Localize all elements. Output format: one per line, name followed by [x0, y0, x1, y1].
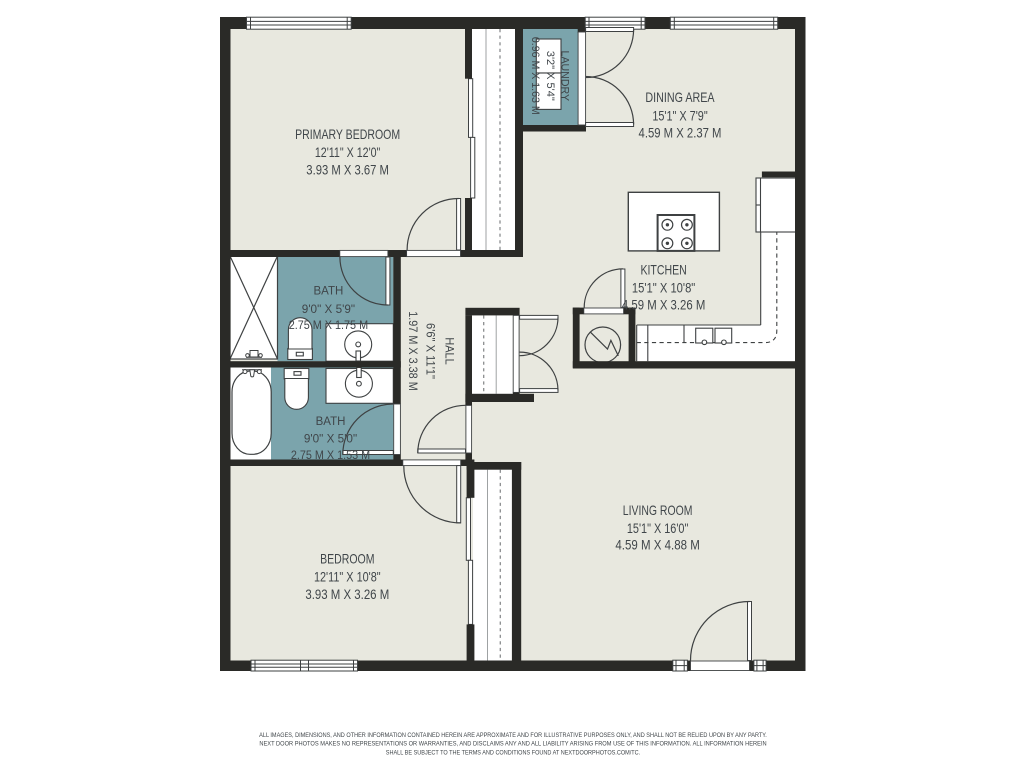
svg-text:12'11" X 12'0": 12'11" X 12'0": [315, 145, 380, 161]
svg-text:ALL IMAGES, DIMENSIONS, AND OT: ALL IMAGES, DIMENSIONS, AND OTHER INFORM…: [259, 732, 767, 740]
svg-text:HALL: HALL: [442, 337, 455, 364]
svg-text:DINING AREA: DINING AREA: [645, 90, 715, 105]
svg-text:12'11" X 10'8": 12'11" X 10'8": [314, 569, 381, 584]
svg-text:KITCHEN: KITCHEN: [640, 262, 686, 278]
svg-text:4.59 M X 3.26 M: 4.59 M X 3.26 M: [622, 298, 705, 313]
svg-text:0.96 M X 1.63 M: 0.96 M X 1.63 M: [529, 37, 541, 115]
svg-text:LIVING ROOM: LIVING ROOM: [623, 503, 693, 519]
svg-text:1.97 M X 3.38 M: 1.97 M X 3.38 M: [406, 311, 419, 390]
svg-text:LAUNDRY: LAUNDRY: [559, 51, 571, 102]
svg-text:PRIMARY BEDROOM: PRIMARY BEDROOM: [295, 127, 400, 143]
svg-text:3.93 M X 3.26 M: 3.93 M X 3.26 M: [305, 587, 389, 602]
svg-text:6'6" X 11'1": 6'6" X 11'1": [423, 323, 435, 379]
svg-text:15'1" X 16'0": 15'1" X 16'0": [627, 521, 688, 536]
svg-text:15'1" X 10'8": 15'1" X 10'8": [632, 280, 695, 295]
svg-text:4.59 M X 2.37 M: 4.59 M X 2.37 M: [639, 125, 722, 140]
svg-text:BATH: BATH: [313, 286, 343, 298]
svg-text:2.75 M X 1.75 M: 2.75 M X 1.75 M: [289, 320, 368, 332]
svg-text:9'0" X 5'0": 9'0" X 5'0": [304, 432, 357, 445]
svg-text:15'1" X 7'9": 15'1" X 7'9": [652, 108, 707, 123]
svg-text:3'2" X 5'4": 3'2" X 5'4": [544, 51, 556, 101]
svg-text:SHALL BE SUBJECT TO THE TERMS: SHALL BE SUBJECT TO THE TERMS AND CONDIT…: [386, 749, 641, 757]
svg-text:BATH: BATH: [316, 416, 346, 428]
svg-text:3.93 M X 3.67 M: 3.93 M X 3.67 M: [306, 163, 389, 178]
svg-text:2.75 M X 1.53 M: 2.75 M X 1.53 M: [291, 450, 370, 462]
svg-text:NEXT DOOR PHOTOS MAKES NO REPR: NEXT DOOR PHOTOS MAKES NO REPRESENTATION…: [259, 740, 767, 748]
svg-text:BEDROOM: BEDROOM: [320, 551, 374, 567]
svg-text:4.59 M X 4.88 M: 4.59 M X 4.88 M: [615, 538, 699, 553]
svg-text:9'0" X 5'9": 9'0" X 5'9": [302, 303, 355, 316]
